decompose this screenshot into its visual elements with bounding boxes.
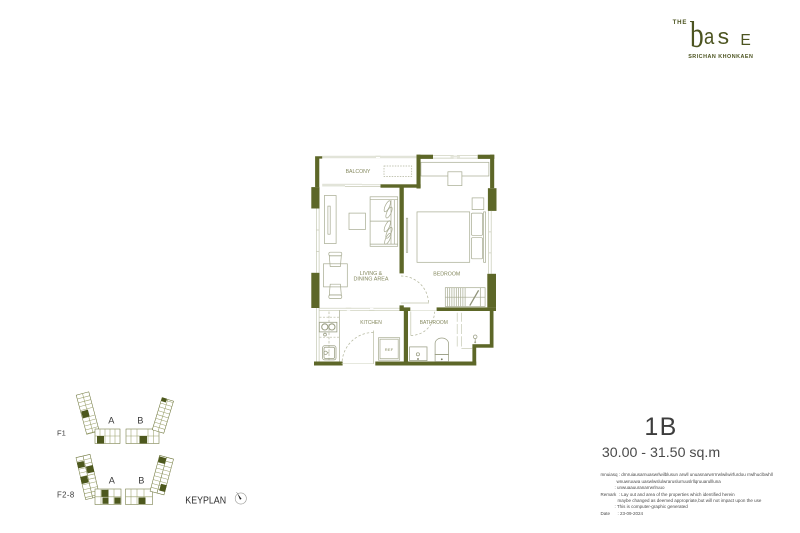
- svg-text:F1: F1: [57, 429, 66, 438]
- svg-text:a: a: [704, 24, 715, 49]
- svg-text:KITCHEN: KITCHEN: [360, 320, 382, 326]
- svg-text:F2-8: F2-8: [57, 491, 75, 500]
- svg-text:BEDROOM: BEDROOM: [433, 271, 460, 277]
- svg-text:A: A: [108, 416, 115, 426]
- svg-text:BATHROOM: BATHROOM: [420, 320, 448, 326]
- svg-text:B: B: [137, 416, 143, 426]
- svg-text:b: b: [690, 15, 704, 56]
- svg-text:DINING AREA: DINING AREA: [354, 276, 390, 282]
- svg-text:THE: THE: [673, 19, 688, 26]
- svg-text:KEYPLAN: KEYPLAN: [185, 496, 226, 507]
- svg-text:BALCONY: BALCONY: [346, 169, 371, 175]
- svg-text:B: B: [138, 476, 144, 486]
- svg-text:A: A: [109, 476, 116, 486]
- svg-text:E: E: [740, 32, 750, 49]
- svg-text:s: s: [718, 23, 729, 49]
- svg-text:REF: REF: [385, 347, 394, 352]
- svg-text:SRICHAN KHONKAEN: SRICHAN KHONKAEN: [688, 54, 753, 60]
